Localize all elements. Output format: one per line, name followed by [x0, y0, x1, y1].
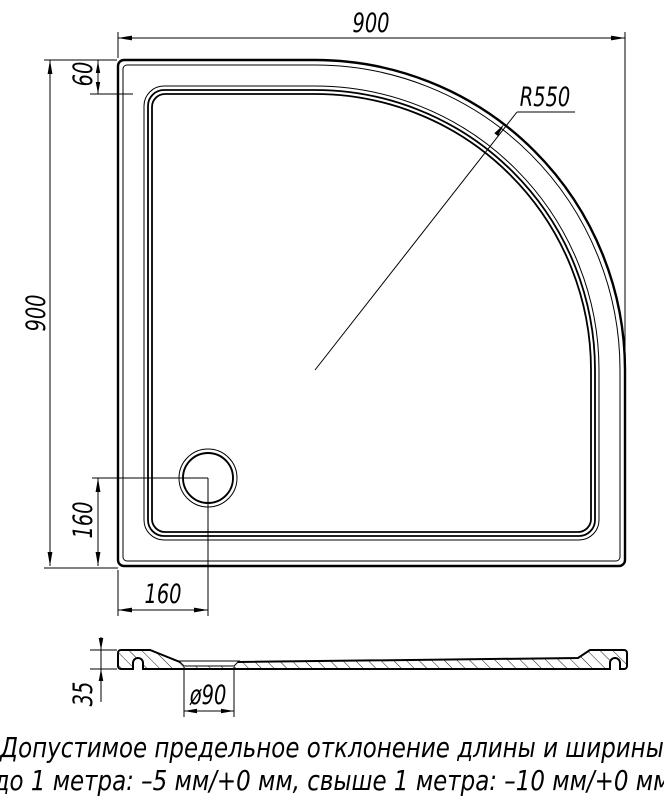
basin-rim-mid	[148, 90, 595, 536]
section-view: 35 ø90	[67, 637, 627, 717]
tray-outline	[118, 60, 625, 566]
dim-width-label: 900	[352, 7, 389, 39]
dim-tray-depth-label: 35	[67, 682, 99, 707]
rim-edge-line	[123, 65, 620, 561]
dimension-lines	[44, 32, 625, 616]
outer-edge	[118, 60, 625, 566]
dimension-arrows	[48, 36, 625, 613]
technical-drawing-page: 900 900 60 160 160 R550	[0, 0, 664, 800]
dim-rim-offset-label: 60	[67, 62, 99, 87]
shower-tray-drawing: 900 900 60 160 160 R550	[0, 0, 664, 800]
dim-corner-radius-label: R550	[520, 81, 571, 113]
basin-rim-inner	[152, 94, 591, 532]
dim-drain-diameter-label: ø90	[189, 679, 226, 711]
top-view: 900 900 60 160 160 R550	[20, 7, 625, 616]
dim-height-label: 900	[20, 294, 52, 331]
tolerance-note-line2: до 1 метра: –5 мм/+0 мм, свыше 1 метра: …	[0, 765, 664, 798]
tolerance-note: Допустимое предельное отклонение длины и…	[0, 732, 664, 798]
dim-drain-offset-y-label: 160	[67, 501, 99, 538]
drain-seat	[179, 661, 239, 666]
tolerance-note-line1: Допустимое предельное отклонение длины и…	[0, 732, 664, 765]
dim-drain-offset-x-label: 160	[144, 578, 181, 610]
